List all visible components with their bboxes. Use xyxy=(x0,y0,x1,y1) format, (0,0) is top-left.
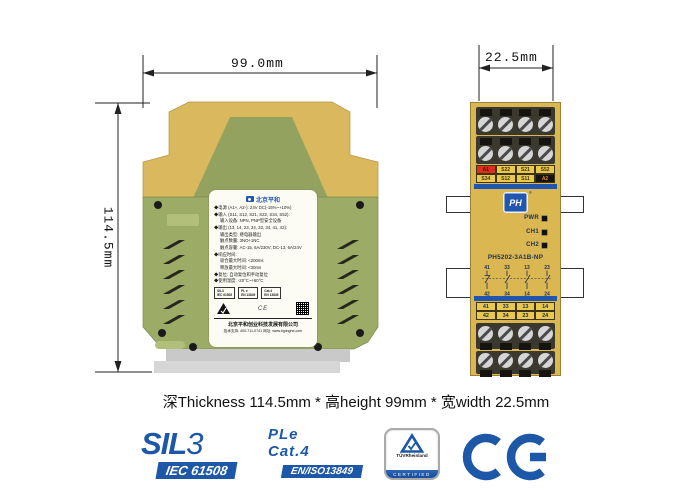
wire-slot xyxy=(539,109,551,116)
wiring-bracket xyxy=(446,196,473,213)
diagram-terminal: 23 xyxy=(544,265,550,271)
terminal-label: A2 xyxy=(535,174,555,183)
led-label: CH2 xyxy=(526,242,539,248)
terminal-label: 13 xyxy=(516,302,536,311)
label-cert-box: PL e EN 13849 xyxy=(238,287,258,299)
iec61508-badge: IEC 61508 xyxy=(156,462,238,479)
dim-label-width-22: 22.5mm xyxy=(485,50,538,65)
led-label: PWR xyxy=(524,215,539,221)
screw-icon xyxy=(538,117,553,132)
screw-icon xyxy=(518,353,533,368)
spec-line: ◆电源 (A1+, A2-): 24V DC(-15%~+10%) xyxy=(214,205,312,212)
screw-icon xyxy=(498,146,513,161)
sil-level: 3 xyxy=(186,426,203,461)
terminal xyxy=(538,136,553,163)
terminal xyxy=(478,353,493,378)
ce-mark-svg xyxy=(462,430,562,484)
ce-mini-icon: CE xyxy=(258,306,268,312)
brand-logo-icon xyxy=(246,196,254,202)
terminal-label: S12 xyxy=(496,174,516,183)
led-indicator xyxy=(542,216,547,221)
brand-row: 北京平和 xyxy=(214,194,312,204)
top-terminal-labels: A1 S22 S21 S52 S34 S12 S11 A2 xyxy=(476,165,555,183)
cert-box-line: IEC 61508 xyxy=(217,293,232,297)
terminal xyxy=(518,353,533,378)
sil-title: SIL xyxy=(141,426,186,461)
module-front-view: A1 S22 S21 S52 S34 S12 S11 A2 PH ® PWR C… xyxy=(471,103,560,375)
terminal-block xyxy=(476,107,555,135)
screw-icon xyxy=(478,326,493,341)
wiring-bracket xyxy=(446,268,473,298)
spec-line: 吸合最大时间: <200ms xyxy=(214,258,312,265)
wire-slot xyxy=(519,343,531,350)
screw-icon xyxy=(518,117,533,132)
wiring-bracket xyxy=(557,268,584,298)
terminal xyxy=(478,107,493,134)
terminal-label: 33 xyxy=(496,302,516,311)
wire-slot xyxy=(519,138,531,145)
diagram-terminal: 13 xyxy=(524,265,530,271)
cert-box-line: EN 13849 xyxy=(264,293,278,297)
side-detail-bar-bottom xyxy=(155,341,185,349)
diagram-terminal: 41 xyxy=(484,265,490,271)
terminal xyxy=(498,107,513,134)
spec-line: ◆使用温度: -20°C~+60°C xyxy=(214,278,312,285)
terminal xyxy=(518,136,533,163)
tuv-certified-strip: CERTIFIED xyxy=(386,470,438,478)
terminal-label: 34 xyxy=(496,311,516,320)
spec-line: 触点数量: 3NO+1NC xyxy=(214,238,312,245)
ph-logo-text: PH xyxy=(509,198,522,208)
wire-slot xyxy=(480,343,492,350)
bottom-terminal-labels: 41 33 13 14 42 34 23 24 xyxy=(476,302,555,320)
wire-slot xyxy=(500,343,512,350)
led-indicator xyxy=(542,230,547,235)
screw-icon xyxy=(538,326,553,341)
terminal xyxy=(498,353,513,378)
wire-slot xyxy=(519,109,531,116)
terminal-label: S22 xyxy=(496,165,516,174)
cert-box-line: EN 13849 xyxy=(241,293,255,297)
screw-icon xyxy=(478,353,493,368)
side-detail-bar-top xyxy=(167,214,199,226)
din-rail-foot xyxy=(154,361,340,373)
wire-slot xyxy=(539,343,551,350)
tuv-mini-icon xyxy=(217,303,230,314)
led-row-ch1: CH1 xyxy=(526,227,547,237)
spec-label: 北京平和 ◆电源 (A1+, A2-): 24V DC(-15%~+10%) ◆… xyxy=(209,190,317,347)
spec-lines: ◆电源 (A1+, A2-): 24V DC(-15%~+10%) ◆输入 (S… xyxy=(214,205,312,285)
spec-line: 触点容量: AC-15, 6A/230V; DC-13, 6A/24V xyxy=(214,245,312,252)
screw-icon xyxy=(518,146,533,161)
wire-slot xyxy=(480,138,492,145)
screw-icon xyxy=(478,146,493,161)
label-cert-box: SIL3 IEC 61508 xyxy=(214,287,235,299)
ce-mark-icon xyxy=(462,430,562,489)
blue-strip xyxy=(474,296,557,301)
tuv-name: TÜVRheinland xyxy=(396,453,427,458)
terminal xyxy=(538,107,553,134)
wire-slot xyxy=(519,370,531,377)
registered-mark: ® xyxy=(529,190,532,195)
led-label: CH1 xyxy=(526,229,539,235)
brand-name: 北京平和 xyxy=(256,195,280,204)
terminal xyxy=(538,353,553,378)
dim-label-height-114: 114.5mm xyxy=(101,196,116,280)
terminal xyxy=(498,136,513,163)
terminal-label: S52 xyxy=(535,165,555,174)
ple-cat4-logo: PLe Cat.4 EN/ISO13849 xyxy=(268,426,362,479)
label-divider xyxy=(214,318,312,319)
terminal xyxy=(478,326,493,351)
label-icons-row: CE xyxy=(214,301,312,316)
wiring-bracket xyxy=(557,196,584,213)
company-name: 北京平和创业科技发展有限公司 xyxy=(214,321,312,328)
terminal-label: 23 xyxy=(516,311,536,320)
dim-label-width-99: 99.0mm xyxy=(231,56,284,71)
spec-line: 输入设备: NPN, PNP型安全设备 xyxy=(214,218,312,225)
terminal-label: 14 xyxy=(535,302,555,311)
screw-icon xyxy=(498,117,513,132)
dimensions-caption: 深Thickness 114.5mm * 高height 99mm * 宽wid… xyxy=(0,391,698,412)
screw-icon xyxy=(498,326,513,341)
wire-slot xyxy=(500,109,512,116)
wire-slot xyxy=(500,370,512,377)
label-cert-boxes: SIL3 IEC 61508 PL e EN 13849 Cat.4 EN 13… xyxy=(214,287,312,299)
screw-icon xyxy=(478,117,493,132)
led-indicator xyxy=(542,243,547,248)
screw-icon xyxy=(518,326,533,341)
terminal xyxy=(498,326,513,351)
qr-code-icon xyxy=(296,302,309,315)
led-row-ch2: CH2 xyxy=(526,240,547,250)
terminal-label: S34 xyxy=(476,174,496,183)
terminal xyxy=(518,107,533,134)
diagram-terminal: 33 xyxy=(504,265,510,271)
terminal-label: 24 xyxy=(535,311,555,320)
sil3-logo: SIL3 IEC 61508 xyxy=(141,426,236,480)
terminal-label: 41 xyxy=(476,302,496,311)
wire-slot xyxy=(539,138,551,145)
terminal-block xyxy=(476,323,555,349)
terminal-block xyxy=(476,351,555,374)
wire-slot xyxy=(480,109,492,116)
terminal-label: S11 xyxy=(516,174,536,183)
eniso13849-badge: EN/ISO13849 xyxy=(281,465,363,478)
terminal-label: S21 xyxy=(516,165,536,174)
wire-slot xyxy=(539,370,551,377)
terminal-block xyxy=(476,136,555,164)
label-cert-box: Cat.4 EN 13849 xyxy=(261,287,281,299)
contact-diagram: 41 33 13 23 42 34 14 24 xyxy=(476,263,555,296)
cat4-text: Cat.4 xyxy=(268,443,362,460)
terminal xyxy=(518,326,533,351)
ph-logo: PH xyxy=(503,192,528,213)
sil3-text: SIL3 xyxy=(141,426,236,462)
spec-line: ◆输出 (13, 14, 23, 24, 33, 34, 41, 42): xyxy=(214,225,312,232)
tuv-triangle-icon xyxy=(400,433,424,454)
contact-symbols xyxy=(482,271,551,290)
contact-info: 技术支持: 400-711-0741 网址: www.bjpinghe.com xyxy=(214,329,312,334)
tuv-rheinland-logo: TÜVRheinland CERTIFIED xyxy=(384,428,440,480)
ple-text: PLe xyxy=(268,426,362,443)
terminal xyxy=(538,326,553,351)
terminal-label: 42 xyxy=(476,311,496,320)
wire-slot xyxy=(500,138,512,145)
terminal xyxy=(478,136,493,163)
model-number: PH5202-3A1B-NP xyxy=(471,254,560,261)
product-spec-image: 99.0mm 114.5mm 22.5mm xyxy=(0,0,698,503)
screw-icon xyxy=(538,353,553,368)
led-row-pwr: PWR xyxy=(524,213,547,223)
screw-icon xyxy=(498,353,513,368)
blue-strip xyxy=(474,184,557,189)
spec-line: 释放最大时间: <30ms xyxy=(214,265,312,272)
screw-icon xyxy=(538,146,553,161)
wire-slot xyxy=(480,370,492,377)
terminal-label: A1 xyxy=(476,165,496,174)
